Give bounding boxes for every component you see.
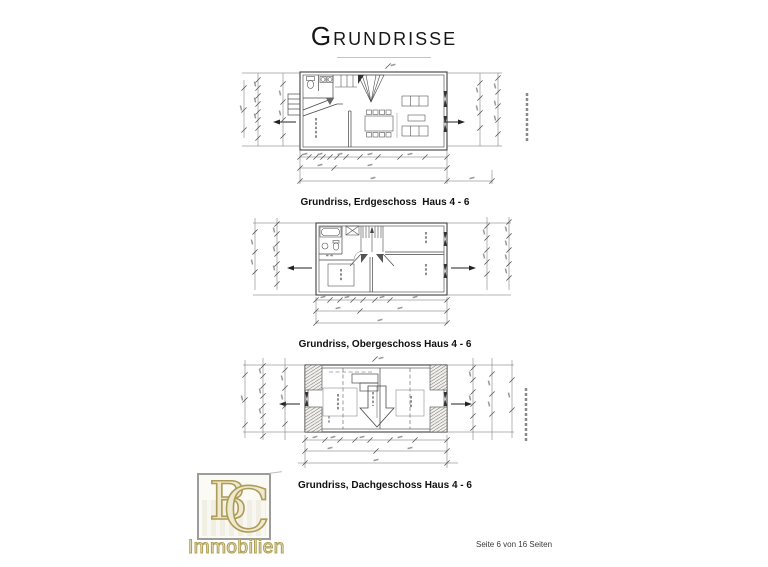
- direction-arrow-right: [451, 402, 472, 407]
- bathroom-fixtures: [320, 226, 359, 250]
- dimension-chain-right: [447, 217, 512, 295]
- staircase: [358, 75, 384, 102]
- erdgeschoss-floorplan-drawing: [230, 58, 540, 203]
- dining-table-and-chairs: [365, 110, 393, 137]
- interior-walls: [319, 226, 444, 292]
- dimension-chain-left: [251, 218, 316, 295]
- dimension-chain-left: [240, 73, 300, 146]
- obergeschoss-floorplan-drawing: [230, 212, 540, 352]
- roof-knee-lines: [329, 368, 410, 429]
- kitchen-counter: [335, 75, 357, 87]
- window-symbols: [305, 392, 447, 406]
- outer-walls: [300, 72, 447, 150]
- staircase: [361, 226, 383, 252]
- sofa-group: [402, 96, 428, 136]
- interior-walls: [303, 75, 397, 147]
- direction-arrow-left: [273, 120, 296, 125]
- page-number-text: Seite 6 von 16 Seiten: [476, 540, 552, 549]
- hatched-gable-walls: [305, 365, 447, 432]
- page-title: Grundrisse: [0, 21, 768, 52]
- dimension-chain-left: [241, 358, 305, 440]
- entry-porch: [288, 94, 300, 115]
- bedroom-closet: [328, 264, 354, 286]
- caption-dachgeschoss: Grundriss, Dachgeschoss Haus 4 - 6: [230, 480, 540, 491]
- direction-arrow-right: [451, 266, 476, 271]
- dimension-chain-bottom: [313, 296, 449, 325]
- staircase: [352, 374, 394, 427]
- scanned-floorplan-page: Grundrisse: [0, 0, 768, 567]
- dimension-chain-right: [447, 358, 515, 440]
- caption-obergeschoss: Grundriss, Obergeschoss Haus 4 - 6: [230, 339, 540, 350]
- bathroom-fixtures: [307, 77, 334, 89]
- logo-frame-tick: [269, 471, 282, 474]
- direction-arrow-left: [279, 402, 300, 407]
- logo-wordmark: Immobilien: [188, 537, 313, 559]
- dimension-chain-right: [447, 73, 502, 146]
- outer-walls: [305, 365, 447, 432]
- caption-erdgeschoss: Grundriss, Erdgeschoss Haus 4 - 6: [230, 197, 540, 208]
- direction-arrow-left: [287, 266, 312, 271]
